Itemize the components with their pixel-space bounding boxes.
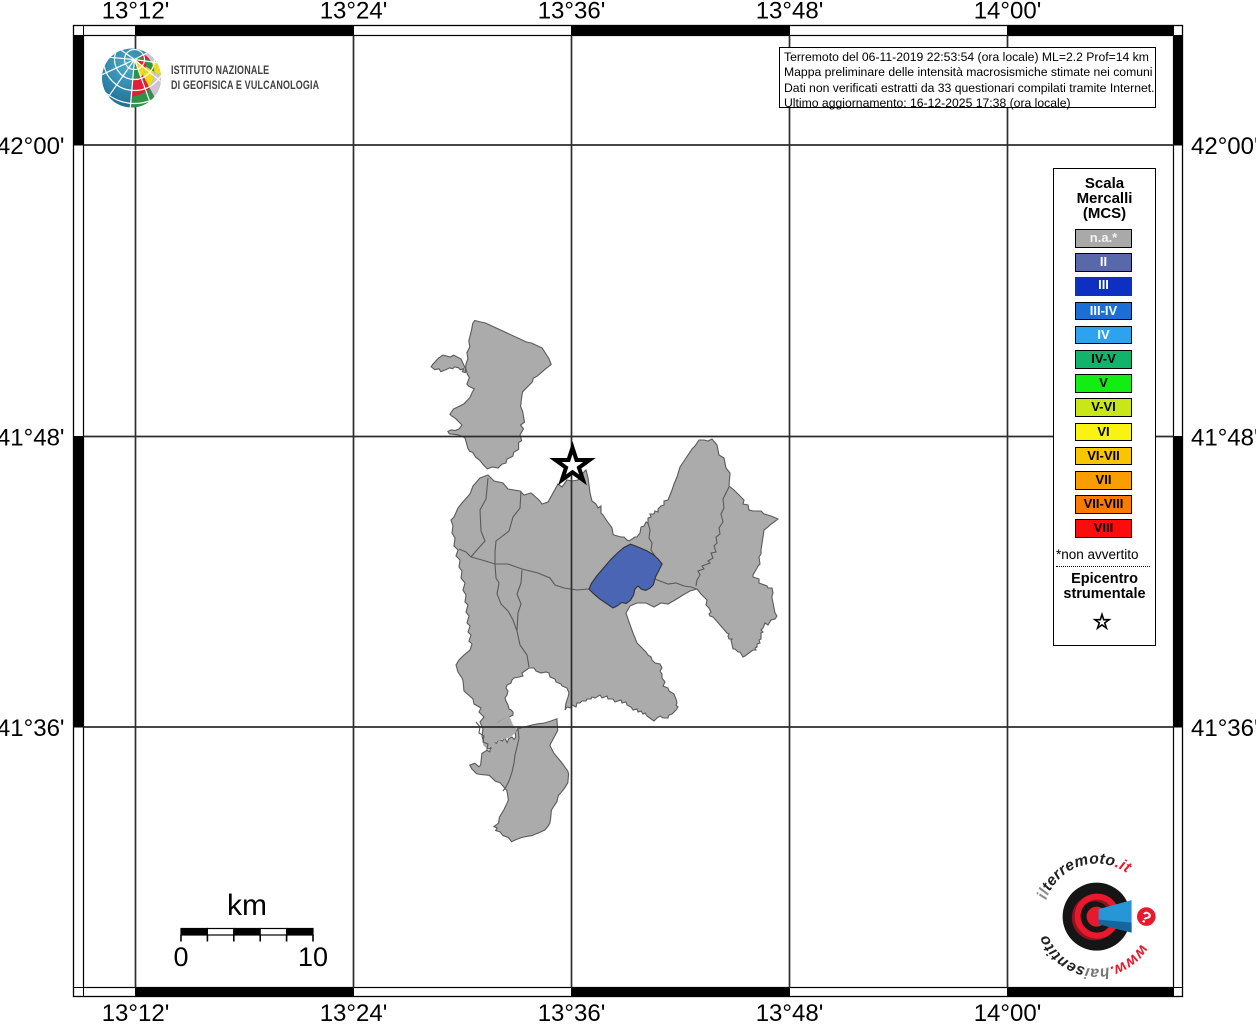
svg-text:14°00': 14°00': [974, 0, 1042, 25]
svg-text:13°36': 13°36': [538, 0, 606, 25]
svg-text:13°24': 13°24': [320, 1000, 388, 1024]
svg-text:42°00': 42°00': [1191, 133, 1256, 160]
svg-text:10: 10: [298, 942, 328, 972]
svg-text:13°12': 13°12': [102, 0, 170, 25]
svg-text:13°36': 13°36': [538, 1000, 606, 1024]
svg-text:13°48': 13°48': [756, 0, 824, 25]
svg-text:41°48': 41°48': [0, 425, 65, 452]
svg-text:41°36': 41°36': [0, 715, 65, 742]
svg-text:41°36': 41°36': [1191, 715, 1256, 742]
svg-text:14°00': 14°00': [974, 1000, 1042, 1024]
svg-text:13°24': 13°24': [320, 0, 388, 25]
svg-text:13°12': 13°12': [102, 1000, 170, 1024]
svg-text:13°48': 13°48': [756, 1000, 824, 1024]
svg-text:km: km: [227, 889, 267, 922]
svg-text:42°00': 42°00': [0, 133, 65, 160]
svg-text:0: 0: [173, 942, 188, 972]
svg-text:41°48': 41°48': [1191, 425, 1256, 452]
